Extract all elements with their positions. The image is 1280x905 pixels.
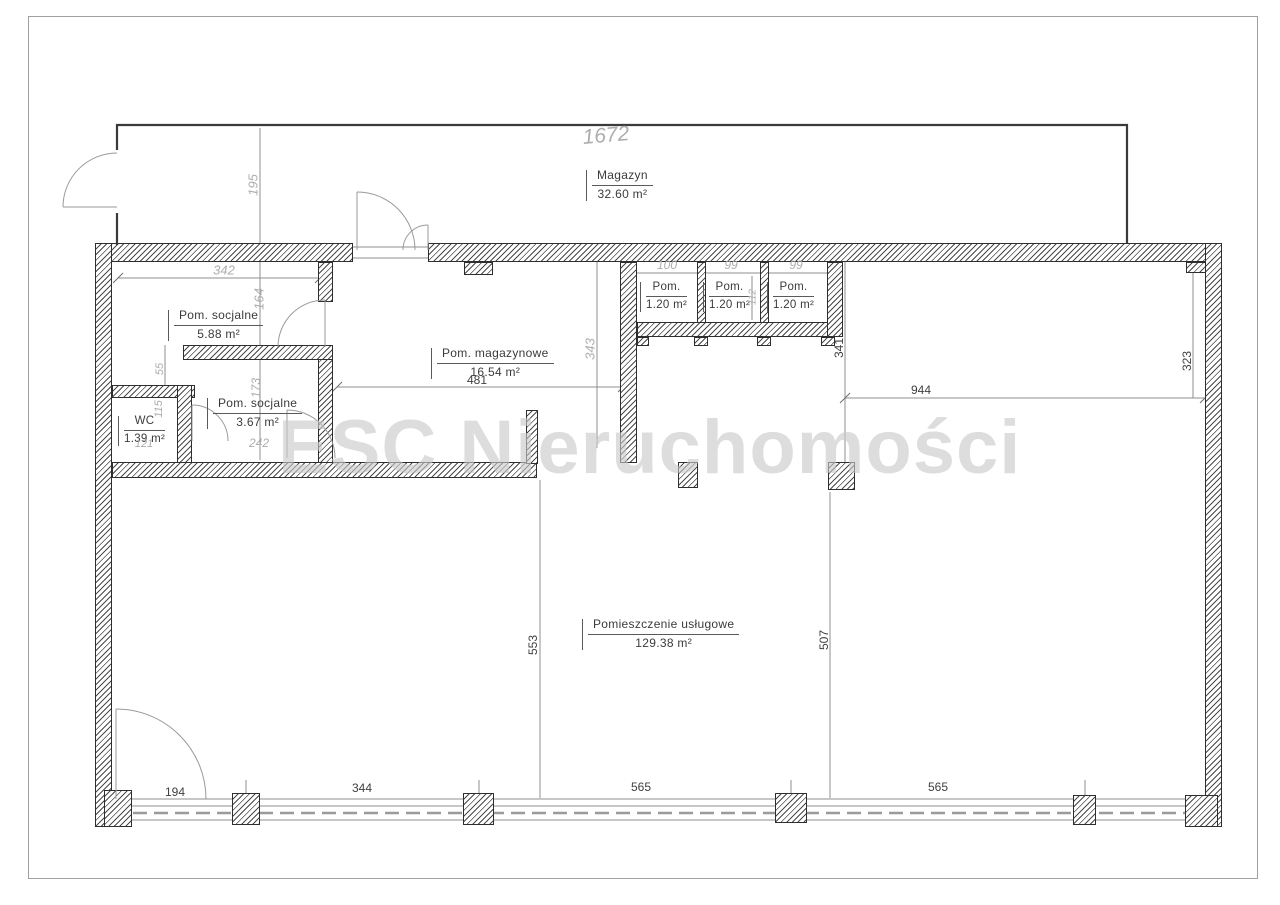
- dim-507: 507: [817, 630, 831, 650]
- room-label-pom3: Pom. 1.20 m²: [773, 280, 814, 313]
- room-name: Pom.: [773, 280, 814, 297]
- room-area: 32.60 m²: [592, 186, 653, 203]
- room-name: Pom.: [709, 280, 750, 297]
- room-name: Pom.: [646, 280, 687, 297]
- room-label-pom1: Pom. 1.20 m²: [646, 280, 687, 313]
- dim-195: 195: [246, 174, 261, 196]
- dim-343: 343: [583, 338, 598, 360]
- dim-242: 242: [249, 436, 269, 450]
- room-area: 1.20 m²: [709, 297, 750, 313]
- room-name: Pomieszczenie usługowe: [588, 617, 739, 635]
- room-name: Magazyn: [592, 168, 653, 186]
- dim-341: 341: [832, 338, 846, 358]
- room-area: 1.20 m²: [646, 297, 687, 313]
- room-label-uslugowe: Pomieszczenie usługowe 129.38 m²: [588, 617, 739, 651]
- dim-481: 481: [467, 373, 487, 387]
- room-label-pom2: Pom. 1.20 m²: [709, 280, 750, 313]
- room-area: 129.38 m²: [588, 635, 739, 652]
- dim-944: 944: [911, 383, 931, 397]
- room-label-socjalne1: Pom. socjalne 5.88 m²: [174, 308, 263, 342]
- dim-342: 342: [213, 263, 235, 278]
- dim-99a: 99: [724, 258, 737, 272]
- floor-plan: Magazyn 32.60 m² Pom. socjalne 5.88 m² W…: [0, 0, 1280, 905]
- watermark: ESC Nieruchomości: [278, 404, 1021, 491]
- room-name: Pom. socjalne: [174, 308, 263, 326]
- dim-100: 100: [657, 258, 677, 272]
- dim-565a: 565: [631, 780, 651, 794]
- dim-121: 121: [135, 438, 153, 450]
- dim-565b: 565: [928, 780, 948, 794]
- room-name: Pom. magazynowe: [437, 346, 554, 364]
- dim-173: 173: [249, 378, 263, 398]
- dim-115: 115: [153, 400, 165, 418]
- room-label-magazynowe: Pom. magazynowe 16.54 m²: [437, 346, 554, 380]
- room-area: 1.20 m²: [773, 297, 814, 313]
- room-label-magazyn: Magazyn 32.60 m²: [592, 168, 653, 202]
- dim-1672: 1672: [582, 122, 631, 150]
- room-area: 16.54 m²: [437, 364, 554, 381]
- dim-112: 112: [748, 289, 759, 305]
- dim-164: 164: [252, 288, 267, 310]
- dim-55: 55: [154, 363, 166, 375]
- dim-553: 553: [526, 635, 540, 655]
- dim-323: 323: [1180, 351, 1194, 371]
- dim-194: 194: [165, 785, 185, 799]
- dim-344: 344: [352, 781, 372, 795]
- dim-99b: 99: [789, 258, 802, 272]
- room-area: 5.88 m²: [174, 326, 263, 343]
